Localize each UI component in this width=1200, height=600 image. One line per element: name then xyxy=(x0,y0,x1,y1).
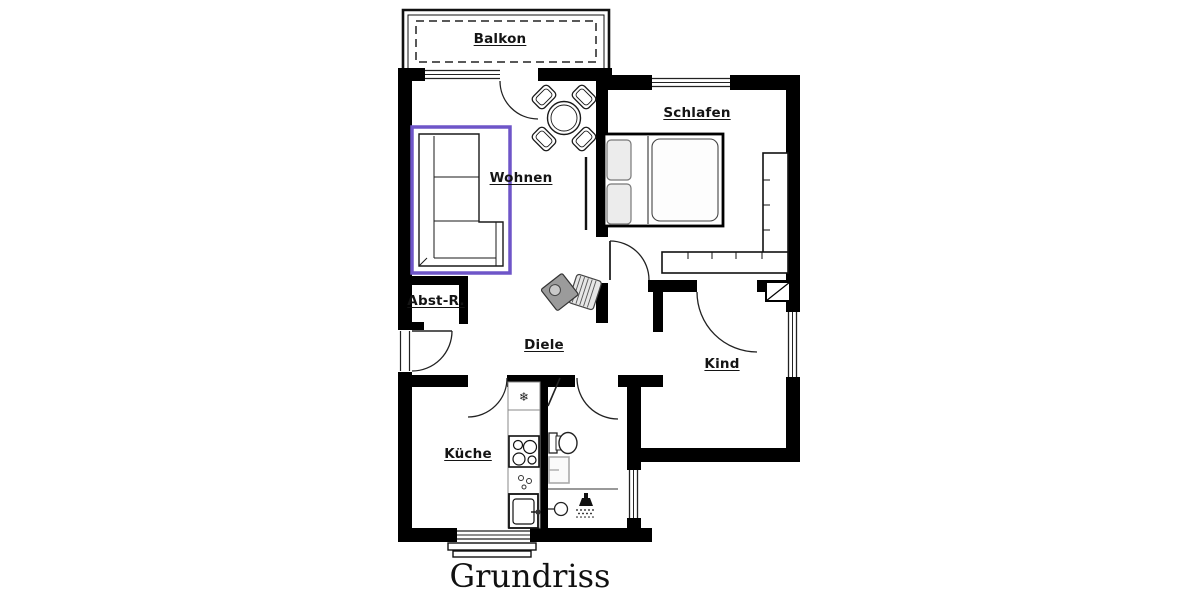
room-label-abstellraum: Abst-R. xyxy=(407,293,464,309)
shower-icon xyxy=(576,493,594,518)
pillow xyxy=(607,184,631,224)
dining-table-and-chairs xyxy=(531,84,598,153)
window-schlafen-top xyxy=(652,75,730,90)
plan-title: Grundriss xyxy=(450,557,611,595)
pillow xyxy=(607,140,631,180)
fridge-icon: ❄ xyxy=(519,390,529,404)
double-bed xyxy=(604,134,723,226)
kitchen-counter: ❄ xyxy=(508,382,541,528)
door-arc-kind xyxy=(697,292,757,352)
shaft xyxy=(766,282,790,301)
washbasin-icon xyxy=(549,457,569,483)
floor-plan: ❄ xyxy=(0,0,1200,600)
door-entrance xyxy=(398,330,452,372)
room-label-balkon: Balkon xyxy=(474,31,527,47)
door-arc-kueche xyxy=(468,378,507,417)
room-label-wohnen: Wohnen xyxy=(490,170,553,186)
window-bad-right xyxy=(627,470,641,518)
stove-icon xyxy=(509,436,539,467)
window-kind-right xyxy=(786,312,800,377)
sofa xyxy=(419,134,503,266)
chair-icon xyxy=(541,273,579,311)
towel-holder-icon xyxy=(548,503,568,516)
door-schlafen xyxy=(610,241,649,280)
floor-plan-drawing: ❄ xyxy=(0,0,1200,600)
window-wohnen-top xyxy=(425,68,500,81)
toilet-icon xyxy=(549,433,577,454)
room-label-diele: Diele xyxy=(524,337,564,353)
sink-icon xyxy=(509,494,541,528)
room-label-schlafen: Schlafen xyxy=(663,105,730,121)
room-label-kind: Kind xyxy=(704,356,739,372)
window-kueche-bottom xyxy=(448,528,536,557)
room-label-kueche: Küche xyxy=(444,446,492,462)
